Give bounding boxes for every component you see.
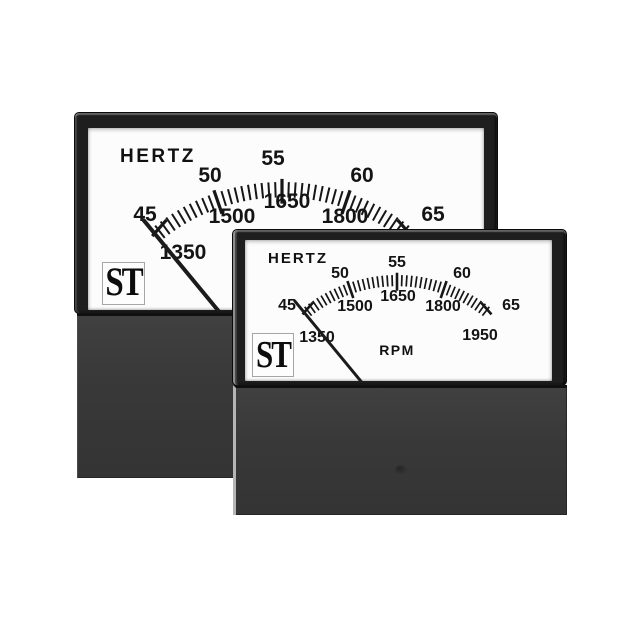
front-scale-label-60: 60: [453, 265, 471, 282]
front-scale-label-65: 65: [502, 297, 520, 314]
front-scale-label-50: 50: [331, 265, 349, 282]
front-scale-label-1950: 1950: [462, 327, 498, 344]
front-body-screw-dot: [395, 465, 407, 474]
front-brand-text: ST: [256, 333, 290, 377]
front-brand-logo: ST: [252, 333, 294, 377]
front-meter-body: [233, 385, 567, 515]
front-meter: HERTZ 45 50 55 60 65 1350 1500 1650 1800…: [0, 0, 640, 640]
front-scale-label-1500: 1500: [337, 298, 373, 315]
front-unit-hertz: HERTZ: [268, 250, 328, 267]
front-scale-label-1800: 1800: [425, 298, 461, 315]
front-scale-label-45: 45: [278, 297, 296, 314]
front-scale-label-1650: 1650: [380, 288, 416, 305]
panel-meters-photo: HERTZ 45 50 55 60 65 1350 1500 1650 1800…: [0, 0, 640, 640]
front-unit-rpm: RPM: [379, 342, 415, 358]
front-scale-label-55: 55: [388, 254, 406, 271]
